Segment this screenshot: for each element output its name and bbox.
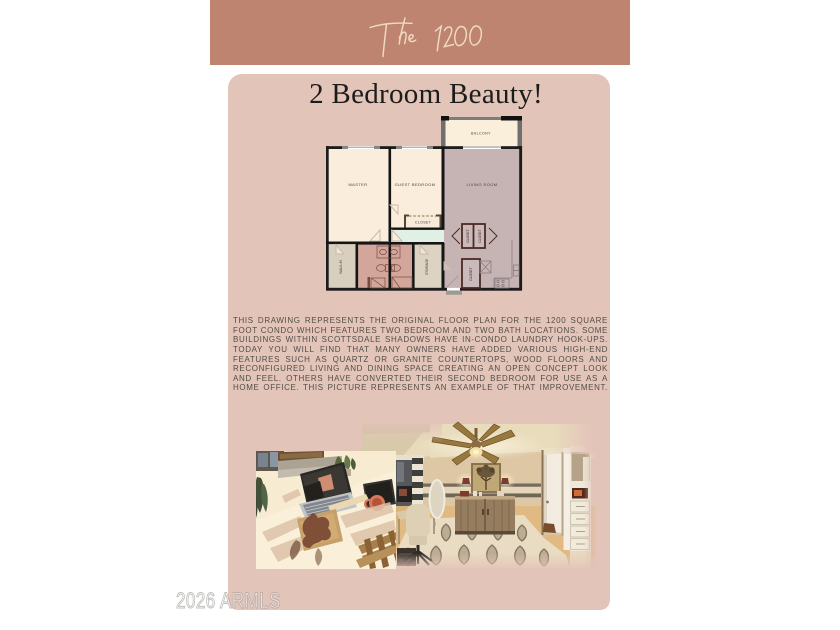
svg-text:GUEST BEDROOM: GUEST BEDROOM xyxy=(395,182,436,187)
svg-text:BALCONY: BALCONY xyxy=(471,132,491,136)
svg-text:CLOSET: CLOSET xyxy=(478,229,482,243)
svg-text:LIVING ROOM: LIVING ROOM xyxy=(466,182,497,187)
svg-text:CLOSET: CLOSET xyxy=(466,229,470,243)
svg-text:STORAGE: STORAGE xyxy=(425,258,429,275)
svg-text:CLOSET: CLOSET xyxy=(415,221,432,225)
svg-text:CLOSET: CLOSET xyxy=(469,267,473,281)
svg-text:MASTER: MASTER xyxy=(348,182,367,187)
svg-text:WALK-IN: WALK-IN xyxy=(339,259,343,274)
